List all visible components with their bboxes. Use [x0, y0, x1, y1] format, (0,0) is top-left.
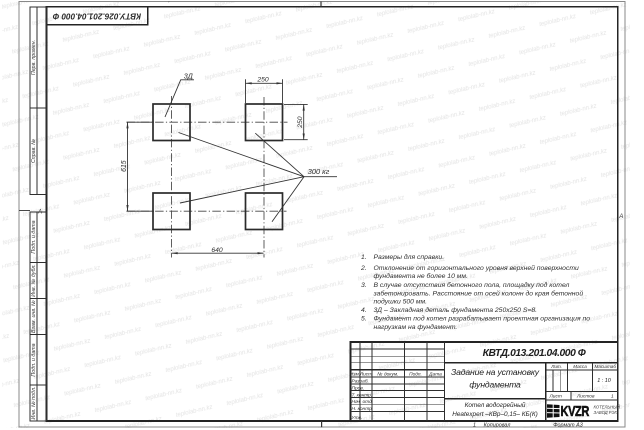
svg-text:Лист: Лист [549, 394, 562, 400]
svg-text:Дата: Дата [428, 371, 442, 377]
svg-text:3Д: 3Д [184, 71, 193, 80]
svg-text:Котел водогрейный: Котел водогрейный [465, 401, 526, 409]
svg-text:Размеры для справки.: Размеры для справки. [374, 253, 445, 261]
svg-text:1 : 10: 1 : 10 [597, 378, 611, 384]
svg-text:Подп. и дата: Подп. и дата [31, 220, 37, 253]
svg-text:Отклонение от горизонтального: Отклонение от горизонтального уровня вер… [374, 264, 580, 272]
svg-text:ЗАВОД РЭП: ЗАВОД РЭП [594, 410, 619, 415]
svg-text:KVZR: KVZR [561, 403, 590, 420]
svg-text:Т. контр.: Т. контр. [352, 392, 373, 398]
svg-text:подушки 500 мм.: подушки 500 мм. [374, 298, 428, 306]
svg-text:5.: 5. [361, 316, 367, 323]
svg-text:Подп.: Подп. [409, 371, 422, 377]
svg-text:фундамента не более 10 мм.: фундамента не более 10 мм. [374, 272, 469, 280]
svg-text:Пров.: Пров. [352, 385, 365, 391]
svg-text:фундамента: фундамента [469, 380, 521, 390]
svg-text:КВТД.013.201.04.000 Ф: КВТД.013.201.04.000 Ф [483, 348, 586, 359]
svg-text:4.: 4. [361, 307, 367, 314]
svg-text:Лист: Лист [359, 371, 372, 377]
svg-text:Подп. и дата: Подп. и дата [31, 343, 37, 376]
svg-text:А: А [618, 214, 623, 220]
svg-text:КОТЕЛЬНЫЙ: КОТЕЛЬНЫЙ [594, 405, 620, 410]
svg-text:Масштаб: Масштаб [594, 364, 616, 369]
svg-text:Лит.: Лит. [550, 364, 562, 369]
svg-text:250: 250 [256, 77, 269, 84]
svg-text:№ докум.: № докум. [377, 371, 398, 377]
svg-text:Взам. инв. №: Взам. инв. № [31, 300, 37, 333]
svg-text:615: 615 [121, 160, 128, 172]
svg-text:нагрузкам на фундамент.: нагрузкам на фундамент. [374, 323, 458, 331]
svg-text:1: 1 [611, 394, 614, 400]
svg-text:Изм.: Изм. [350, 371, 360, 377]
svg-text:Нач. отд: Нач. отд [352, 399, 373, 405]
svg-text:Инв. № подл.: Инв. № подл. [31, 387, 37, 420]
svg-text:640: 640 [211, 247, 223, 254]
svg-text:3Д – Закладная деталь фундамен: 3Д – Закладная деталь фундамента 250х250… [374, 306, 538, 314]
svg-text:Утв.: Утв. [352, 415, 363, 421]
svg-text:В случае отсутствия бетонного: В случае отсутствия бетонного пола, площ… [374, 281, 570, 289]
svg-text:Листов: Листов [576, 394, 595, 400]
svg-text:Инв. № дубл.: Инв. № дубл. [31, 264, 37, 297]
svg-text:Масса: Масса [573, 364, 587, 369]
svg-text:Фундамент под котел разрабатыв: Фундамент под котел разрабатывает проект… [374, 315, 591, 323]
svg-text:Н. контр.: Н. контр. [352, 406, 374, 412]
svg-text:Heatexpert –КВр–0,15– КБ(К): Heatexpert –КВр–0,15– КБ(К) [452, 411, 537, 418]
svg-text:250: 250 [297, 116, 304, 129]
svg-text:Справ. №: Справ. № [31, 139, 37, 163]
svg-text:1: 1 [473, 422, 476, 428]
svg-text:Формат А3: Формат А3 [553, 422, 583, 428]
svg-text:1.: 1. [361, 254, 367, 261]
svg-text:забетонировать. Расстояние от: забетонировать. Расстояние от осей колон… [373, 289, 584, 297]
svg-text:КВТУ.026.201.04.000 Ф: КВТУ.026.201.04.000 Ф [52, 12, 141, 21]
svg-text:Разраб.: Разраб. [352, 379, 369, 385]
svg-text:Копировал: Копировал [484, 422, 511, 428]
svg-text:2.: 2. [360, 265, 367, 272]
svg-text:3.: 3. [361, 282, 367, 289]
svg-text:Задание на установку: Задание на установку [451, 367, 540, 377]
svg-text:300 кг: 300 кг [308, 167, 330, 176]
svg-text:Перв. примен.: Перв. примен. [31, 40, 37, 75]
